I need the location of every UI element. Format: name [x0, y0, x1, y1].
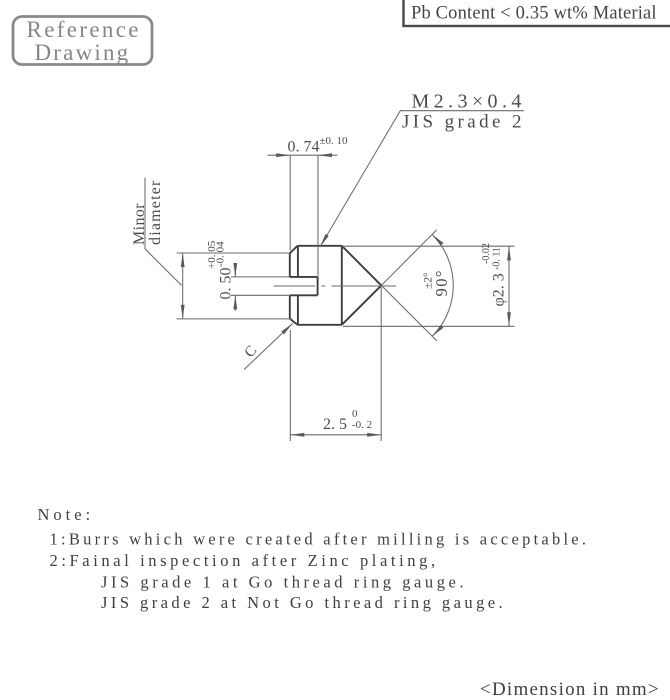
svg-text:90°: 90° — [432, 269, 451, 296]
svg-text:-0. 04: -0. 04 — [214, 241, 226, 267]
svg-text:-0.02: -0.02 — [481, 243, 492, 264]
svg-text:<Dimension in mm>: <Dimension in mm> — [480, 679, 660, 700]
svg-text:Reference: Reference — [27, 17, 141, 42]
svg-text:-0. 2: -0. 2 — [352, 419, 372, 431]
svg-text:JIS grade 2 at Not Go thread r: JIS grade 2 at Not Go thread ring gauge. — [101, 593, 506, 612]
svg-text:Pb Content < 0.35 wt% Material: Pb Content < 0.35 wt% Material — [411, 4, 657, 24]
svg-text:2:Fainal inspection after Zinc: 2:Fainal inspection after Zinc plating, — [50, 551, 439, 570]
svg-text:0. 50: 0. 50 — [218, 268, 235, 300]
svg-text:0. 74: 0. 74 — [288, 139, 320, 156]
svg-text:1:Burrs which were created aft: 1:Burrs which were created after milling… — [50, 530, 590, 549]
svg-text:Note:: Note: — [38, 505, 95, 524]
svg-text:2. 5: 2. 5 — [323, 416, 347, 433]
svg-text:diameter: diameter — [147, 179, 164, 245]
svg-text:φ2. 3: φ2. 3 — [490, 273, 507, 306]
svg-text:JIS grade 2: JIS grade 2 — [402, 112, 525, 133]
svg-text:±0. 10: ±0. 10 — [320, 135, 349, 147]
svg-text:±2°: ±2° — [423, 272, 435, 289]
svg-text:-0. 11: -0. 11 — [492, 247, 503, 270]
svg-text:JIS grade 1 at Go thread ring: JIS grade 1 at Go thread ring gauge. — [101, 573, 467, 592]
svg-text:C: C — [242, 343, 261, 361]
svg-text:M2.3×0.4: M2.3×0.4 — [412, 91, 526, 113]
svg-text:Drawing: Drawing — [35, 40, 131, 65]
